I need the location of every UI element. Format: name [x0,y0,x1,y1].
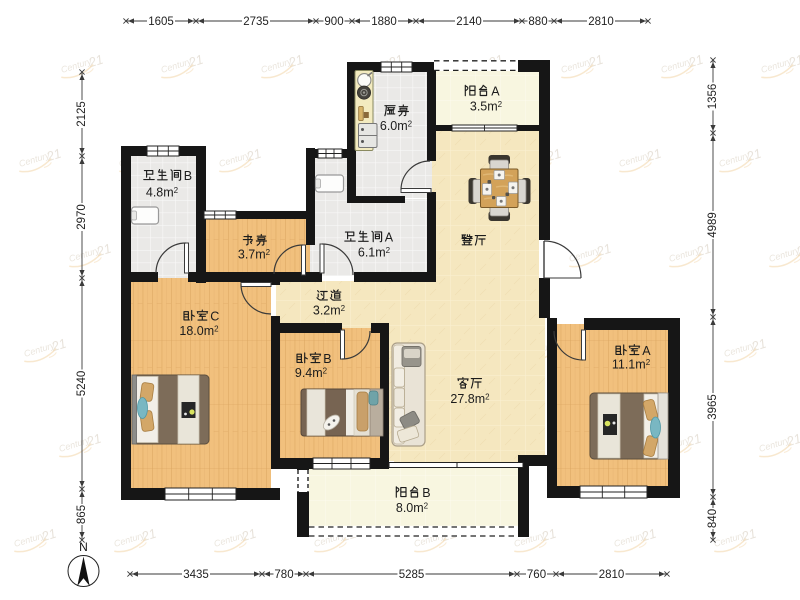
svg-text:780: 780 [274,569,293,581]
svg-text:A: A [642,344,651,358]
svg-text:5285: 5285 [399,569,425,581]
svg-text:2125: 2125 [76,101,88,127]
svg-text:3435: 3435 [183,569,209,581]
svg-text:900: 900 [324,16,343,28]
svg-text:A: A [385,230,394,244]
svg-text:B: B [184,169,192,183]
svg-text:2735: 2735 [243,16,269,28]
svg-text:C: C [210,309,219,323]
svg-text:1605: 1605 [148,16,174,28]
svg-text:B: B [422,486,430,500]
svg-text:N: N [79,540,88,554]
svg-text:880: 880 [528,16,547,28]
svg-text:1880: 1880 [371,16,397,28]
svg-text:840: 840 [707,509,719,528]
svg-text:2970: 2970 [76,204,88,230]
svg-text:4989: 4989 [707,212,719,238]
svg-text:A: A [491,84,500,98]
svg-text:5240: 5240 [76,371,88,397]
svg-text:11.1m2: 11.1m2 [612,358,651,372]
svg-text:2140: 2140 [456,16,482,28]
svg-text:760: 760 [527,569,546,581]
svg-text:1356: 1356 [707,84,719,110]
svg-text:2810: 2810 [588,16,614,28]
svg-text:B: B [323,352,331,366]
svg-text:2810: 2810 [599,569,625,581]
svg-text:865: 865 [76,505,88,524]
svg-text:27.8m2: 27.8m2 [450,392,490,406]
svg-text:3965: 3965 [707,394,719,420]
svg-text:18.0m2: 18.0m2 [179,324,219,338]
